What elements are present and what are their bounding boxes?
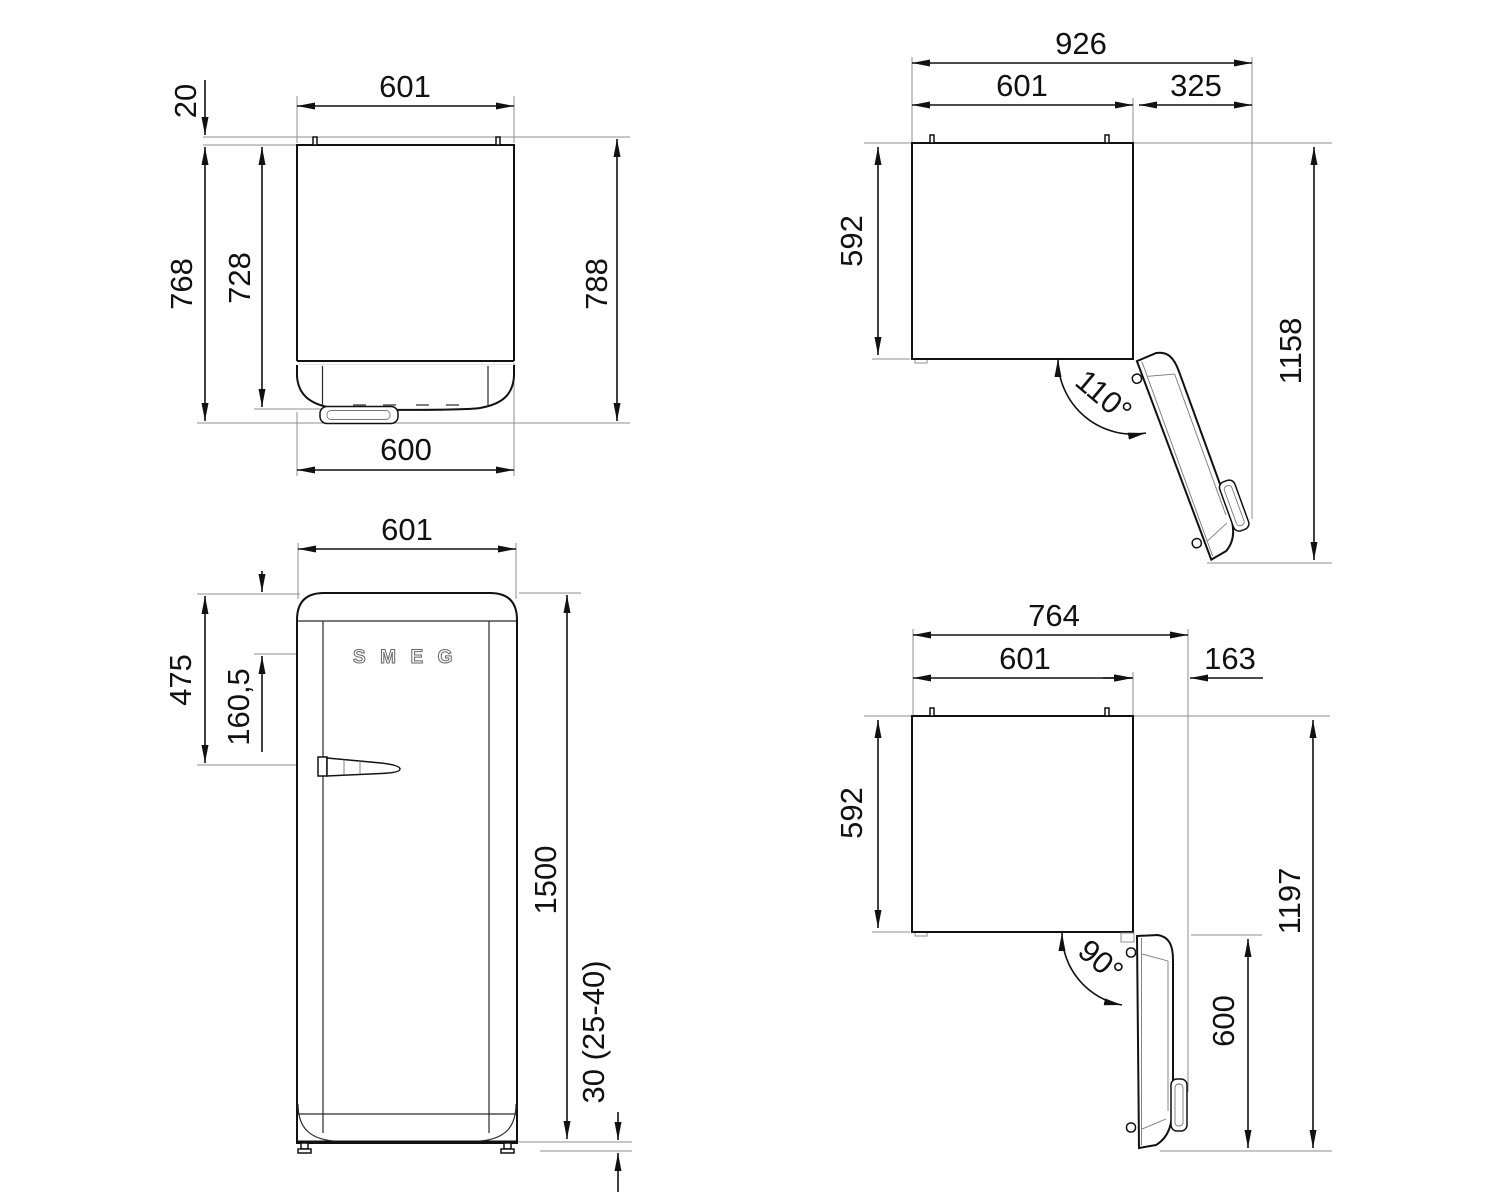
dim-label-door-projection-163: 163 — [1204, 641, 1256, 676]
dim-label-body-width-601: 601 — [999, 641, 1051, 676]
dim-label-body-width-601: 601 — [996, 68, 1048, 103]
cabinet-outline — [912, 708, 1134, 942]
dim-label-door-depth-600: 600 — [1206, 995, 1241, 1047]
technical-drawing: 601 20 768 728 788 600 — [0, 0, 1500, 1200]
hinge-pin — [930, 135, 934, 143]
view-top-open-110: 926 601 325 592 1158 110° — [834, 26, 1332, 564]
dim-label-handle-475: 475 — [163, 654, 198, 706]
dim-label-width-601: 601 — [381, 512, 433, 547]
dim-label-body-depth-592: 592 — [834, 787, 869, 839]
view-top-open-90: 764 601 163 592 1197 600 90° — [834, 598, 1332, 1151]
dim-label-feet-30: 30 (25-40) — [576, 960, 611, 1103]
dimension-drawing-page: 601 20 768 728 788 600 — [0, 0, 1500, 1200]
hinge-pin — [1105, 135, 1109, 143]
dim-label-rear-clearance: 20 — [168, 84, 203, 118]
cabinet-outline — [912, 135, 1133, 363]
fridge-outline: SMEG — [297, 593, 517, 1153]
dim-label-top-width: 601 — [379, 69, 431, 104]
hinge-pin — [930, 708, 934, 716]
angle-label-110: 110° — [1069, 363, 1139, 430]
dim-label-door-projection-325: 325 — [1170, 68, 1222, 103]
dim-label-depth-768: 768 — [164, 258, 199, 310]
dim-label-total-width-926: 926 — [1055, 26, 1107, 61]
leveling-feet — [298, 1143, 514, 1153]
view-front: SMEG 601 475 160,5 1 — [163, 512, 632, 1192]
cabinet-outline — [297, 137, 514, 424]
dim-label-depth-728: 728 — [222, 252, 257, 304]
dim-label-total-depth-1197: 1197 — [1272, 868, 1307, 935]
dim-label-logo-160-5: 160,5 — [221, 668, 256, 746]
dim-label-body-depth-592: 592 — [834, 215, 869, 267]
dim-label-total-depth-1158: 1158 — [1273, 318, 1308, 385]
dim-label-depth-788: 788 — [579, 258, 614, 310]
dim-label-height-1500: 1500 — [528, 846, 563, 915]
hinge-bracket — [1121, 933, 1134, 942]
smeg-logo: SMEG — [353, 647, 467, 668]
hinge-pin — [313, 137, 317, 145]
door-handle-top — [320, 407, 398, 424]
dim-label-total-width-764: 764 — [1028, 598, 1080, 633]
hinge-pin — [496, 137, 500, 145]
hinge-pin — [1105, 708, 1109, 716]
dim-label-front-width: 600 — [380, 432, 432, 467]
view-top-closed: 601 20 768 728 788 600 — [164, 69, 630, 476]
open-door-110 — [1127, 343, 1257, 564]
open-door-90 — [1127, 935, 1188, 1148]
